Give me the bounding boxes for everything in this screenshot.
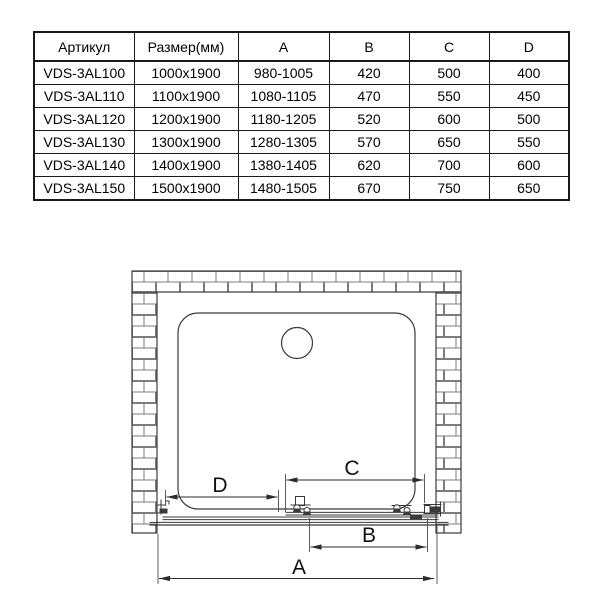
- brick-wall-right: [436, 292, 461, 533]
- door-handle: [410, 515, 422, 520]
- drain-circle: [282, 328, 313, 359]
- wall-profile-right: [424, 502, 441, 516]
- dim-label-a: A: [292, 556, 306, 579]
- brick-wall-top: [132, 271, 461, 292]
- dim-label-b: B: [362, 524, 376, 547]
- wall-profile-left: [157, 500, 169, 514]
- brick-wall-left: [132, 292, 157, 533]
- dim-label-c: C: [344, 457, 359, 480]
- shower-installation-drawing: A B C D: [0, 0, 600, 600]
- dim-label-d: D: [212, 474, 227, 497]
- fixed-panel: [163, 517, 438, 520]
